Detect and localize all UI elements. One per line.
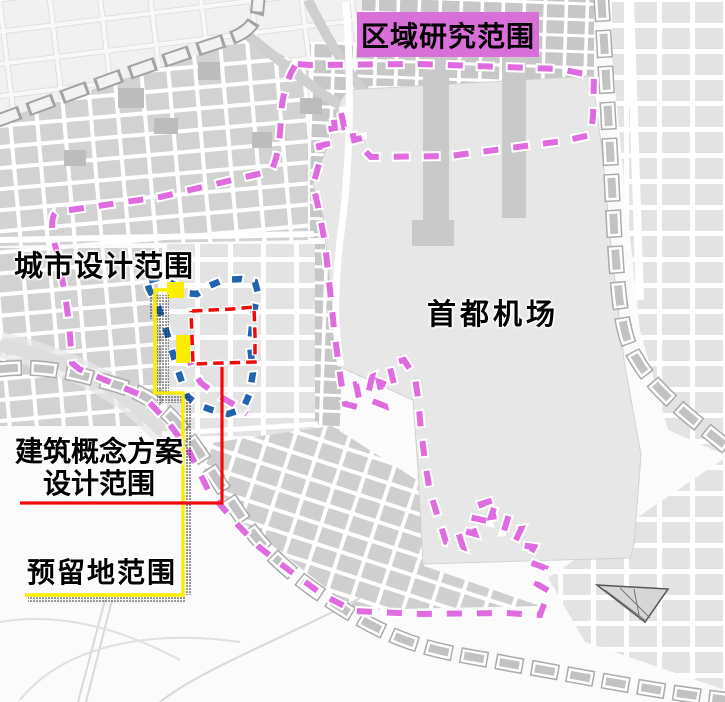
planning-map: 区域研究范围 城市设计范围 首都机场 建筑概念方案 设计范围 预留地范围 xyxy=(0,0,725,702)
urban-design-scope-label: 城市设计范围 xyxy=(14,243,194,285)
concept-design-scope-label-line2: 设计范围 xyxy=(0,468,198,500)
concept-design-scope-label-line1: 建筑概念方案 xyxy=(0,436,198,468)
map-canvas xyxy=(0,0,725,702)
region-research-scope-label: 区域研究范围 xyxy=(357,12,539,57)
reserved-land-scope-label: 预留地范围 xyxy=(27,551,177,591)
capital-airport-label: 首都机场 xyxy=(427,291,559,333)
airport-runway-west xyxy=(423,28,449,226)
reserved-land-parcel-south xyxy=(176,335,190,363)
airport-terminal-block xyxy=(412,220,454,246)
concept-design-scope-label: 建筑概念方案 设计范围 xyxy=(0,436,198,500)
